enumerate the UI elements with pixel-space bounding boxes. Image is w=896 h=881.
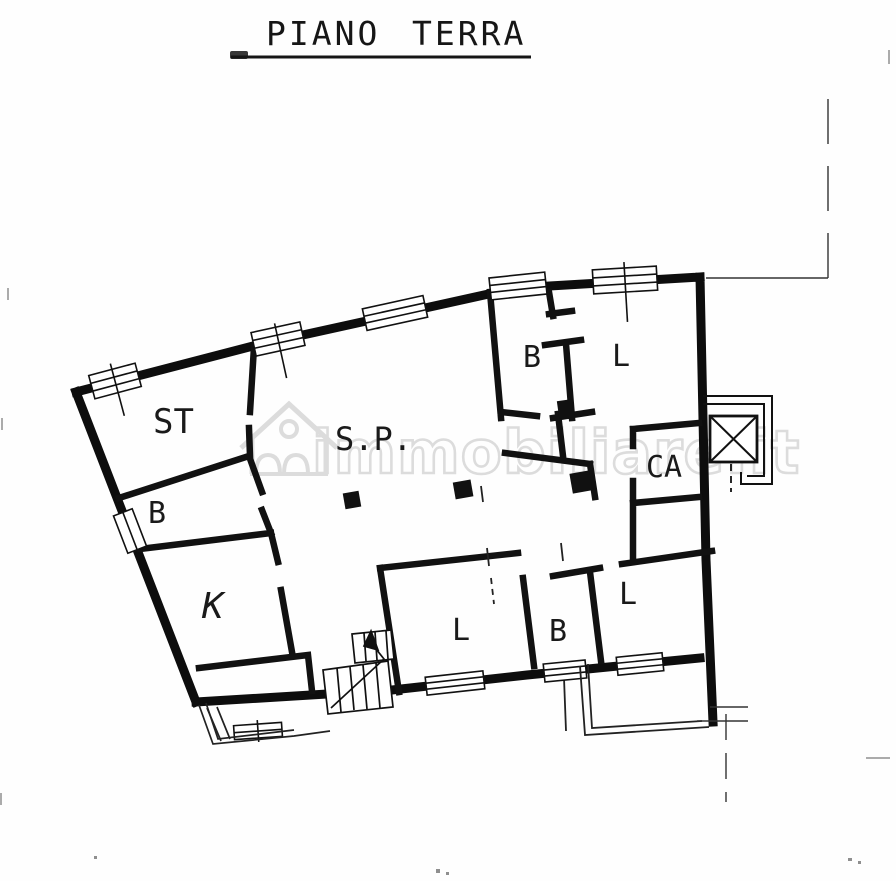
room-label-b-left: B bbox=[148, 496, 166, 531]
column-icon bbox=[343, 491, 362, 510]
window-icon bbox=[362, 296, 427, 331]
title: PIANO TERRA bbox=[230, 14, 531, 59]
title-word-2: TERRA bbox=[412, 14, 526, 53]
room-label-l-right: L bbox=[619, 577, 637, 612]
window-icon bbox=[250, 318, 311, 383]
room-label-b-bottom: B bbox=[549, 614, 567, 649]
room-label-l-bottom: L bbox=[452, 613, 470, 648]
column-icon bbox=[453, 480, 474, 500]
door-tick bbox=[491, 578, 494, 604]
duct-icon bbox=[557, 399, 575, 419]
window-icon bbox=[489, 272, 547, 300]
window-icon bbox=[616, 653, 664, 675]
door-marks bbox=[481, 486, 566, 731]
boundary-line bbox=[697, 707, 748, 721]
window-icon bbox=[425, 671, 485, 695]
floor-plan-drawing: immobiliare.it PIANO TERRA bbox=[0, 0, 896, 881]
room-labels: ST B S.P. B L CA K L B L bbox=[148, 339, 682, 649]
title-word-1: PIANO bbox=[266, 14, 380, 53]
door-tick bbox=[561, 543, 563, 561]
scanned-floor-plan-page: immobiliare.it PIANO TERRA bbox=[0, 0, 896, 881]
room-label-k: K bbox=[201, 586, 226, 627]
window-icon bbox=[113, 509, 146, 554]
balcony-divider-line bbox=[564, 678, 566, 731]
ink-blot bbox=[230, 51, 248, 59]
door-tick bbox=[487, 548, 489, 566]
window-icon bbox=[87, 357, 147, 422]
column-icon bbox=[569, 470, 592, 493]
staircase-icon bbox=[323, 630, 394, 714]
room-label-l-top: L bbox=[612, 339, 630, 374]
window-icon bbox=[592, 260, 659, 324]
room-label-b-top: B bbox=[523, 340, 541, 375]
balcony bbox=[580, 664, 709, 735]
room-label-ca: CA bbox=[646, 450, 682, 485]
room-label-sp: S.P. bbox=[335, 420, 412, 458]
room-label-st: ST bbox=[153, 402, 194, 442]
door-tick bbox=[481, 486, 483, 502]
